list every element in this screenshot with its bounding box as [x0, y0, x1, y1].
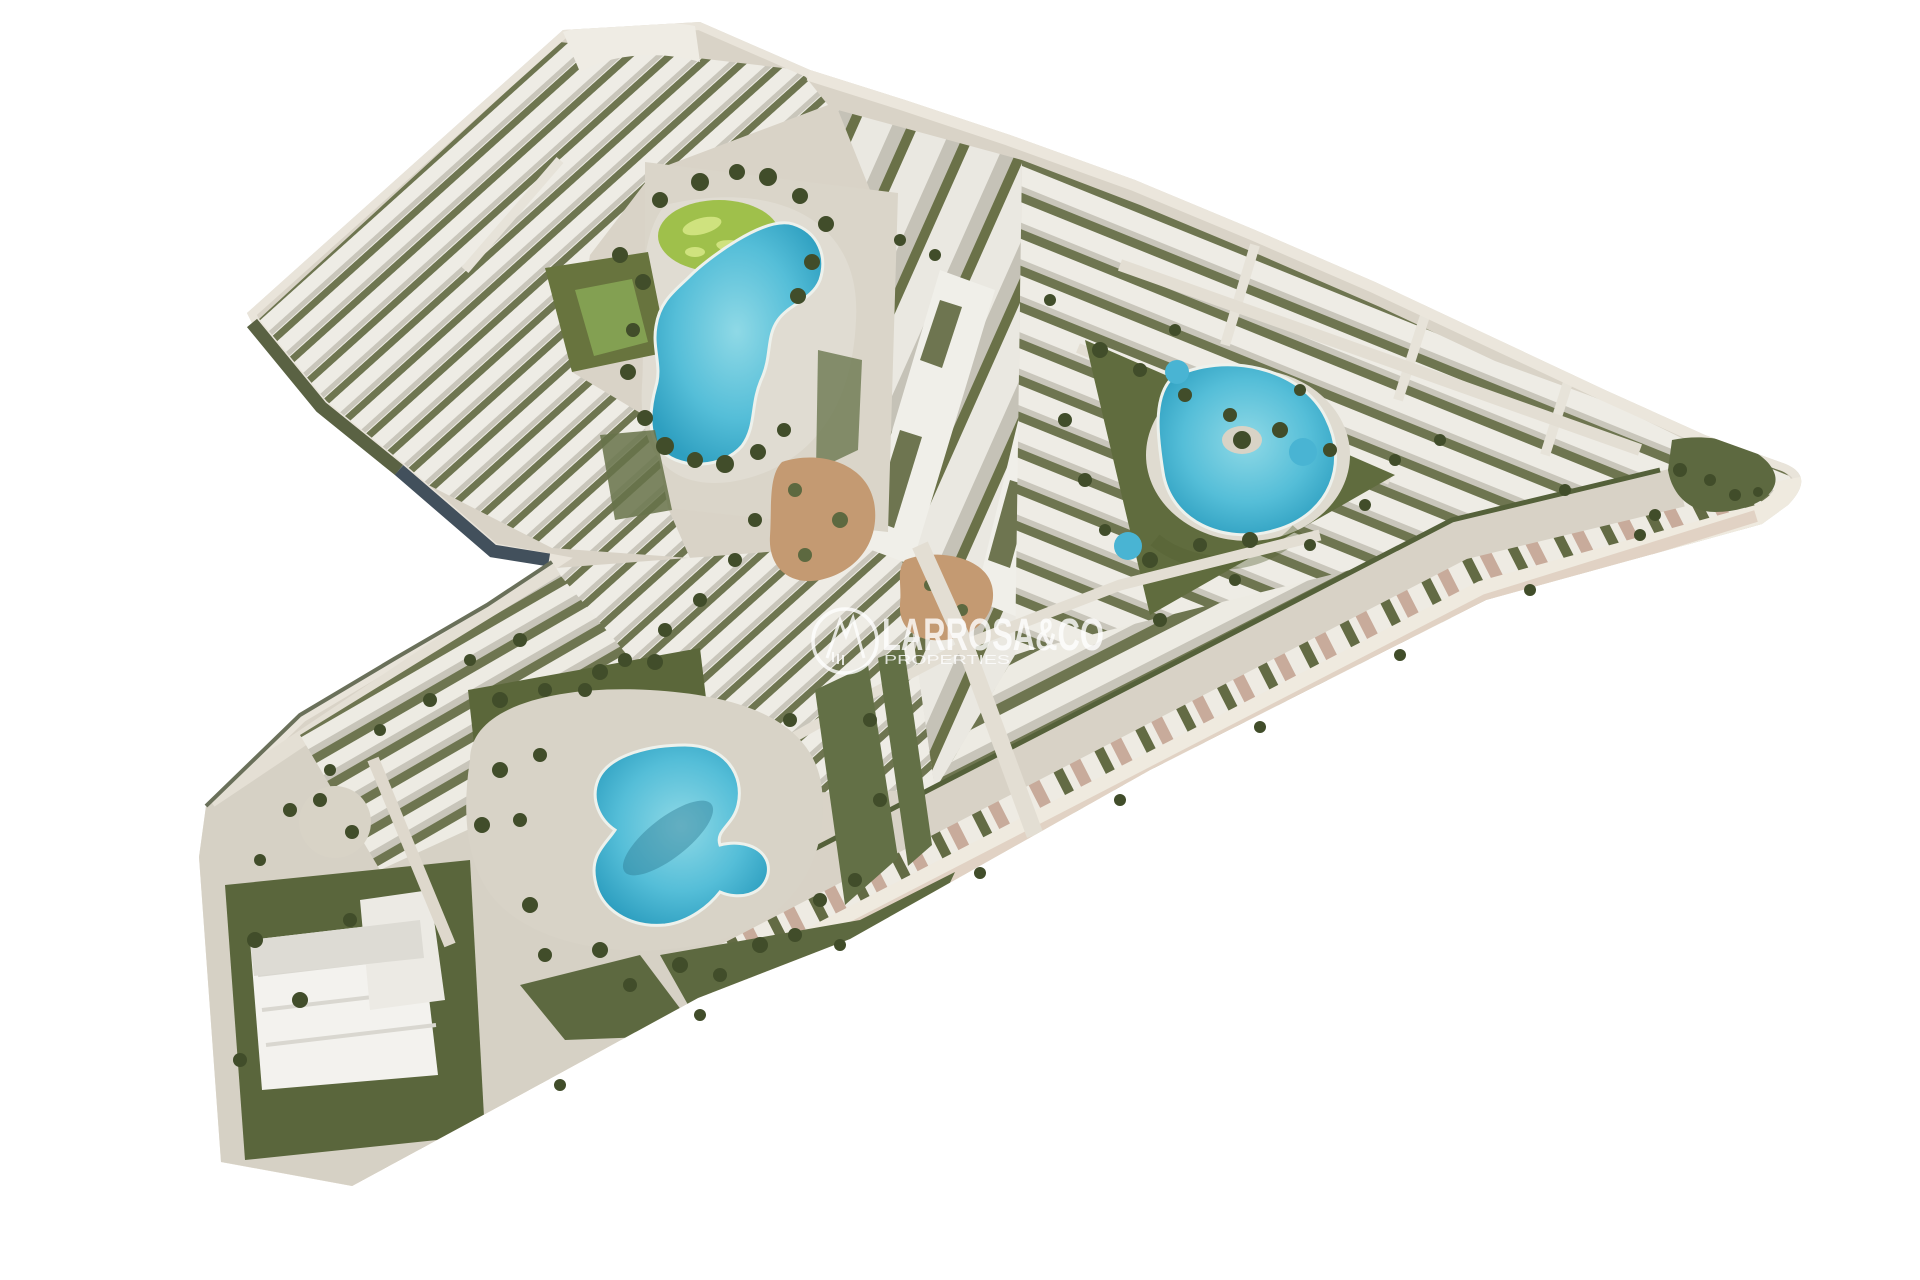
svg-text:PROPERTIES: PROPERTIES: [884, 652, 1010, 667]
